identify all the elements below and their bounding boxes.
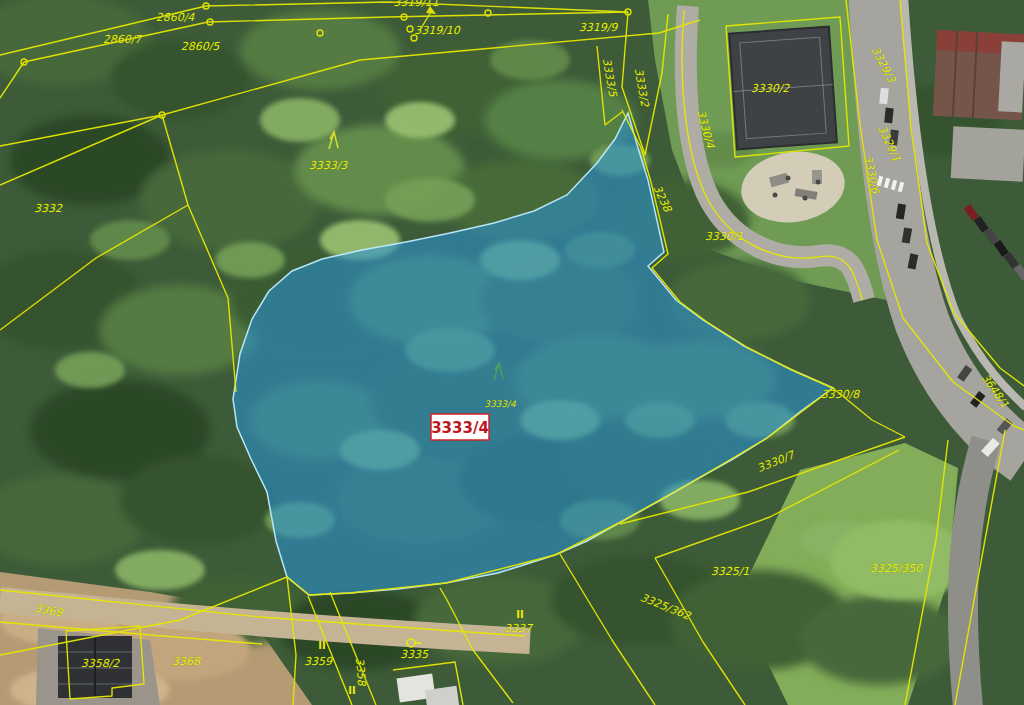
parcel-label: 3368 bbox=[172, 655, 201, 668]
highlight-parcel-label: 3333/4 bbox=[431, 414, 489, 440]
parcel-label: 3319/10 bbox=[414, 24, 461, 37]
parcel-label: 3330/8 bbox=[821, 388, 861, 401]
land-use-ii-symbol: II bbox=[348, 685, 355, 696]
parcel-label: 2860/7 bbox=[103, 33, 144, 46]
parcel-label: 3332 bbox=[34, 202, 63, 215]
building-large bbox=[933, 30, 1024, 121]
parcel-label: 2860/4 bbox=[156, 11, 196, 24]
parcel-label: 3319/11 bbox=[393, 0, 439, 9]
map-viewport[interactable]: IIIIII 2860/42860/72860/53319/113319/103… bbox=[0, 0, 1024, 705]
land-use-ii-symbol: II bbox=[318, 640, 325, 651]
parcel-label: 3335 bbox=[400, 648, 429, 661]
parcel-label: 3333/4 bbox=[484, 399, 516, 409]
land-use-ii-symbol: II bbox=[516, 609, 523, 620]
map-canvas[interactable]: IIIIII 2860/42860/72860/53319/113319/103… bbox=[0, 0, 1024, 705]
parcel-label: 3325/1 bbox=[711, 565, 750, 578]
parcel-label: 3337 bbox=[504, 622, 534, 635]
highlight-parcel-number: 3333/4 bbox=[431, 419, 489, 437]
parcel-label: 3325/350 bbox=[870, 562, 924, 575]
parcel-label: 3358 bbox=[353, 657, 368, 687]
parcel-label: 3319/9 bbox=[579, 21, 619, 34]
parcel-label: 3330/2 bbox=[751, 82, 791, 95]
parcel-label: 3358/2 bbox=[81, 657, 121, 670]
building-small bbox=[951, 126, 1024, 182]
parcel-label: 3359 bbox=[304, 655, 333, 668]
parcel-label: 3330/1 bbox=[705, 230, 744, 243]
parcel-label: 3333/3 bbox=[309, 159, 349, 172]
parcel-label: 2860/5 bbox=[181, 40, 221, 53]
